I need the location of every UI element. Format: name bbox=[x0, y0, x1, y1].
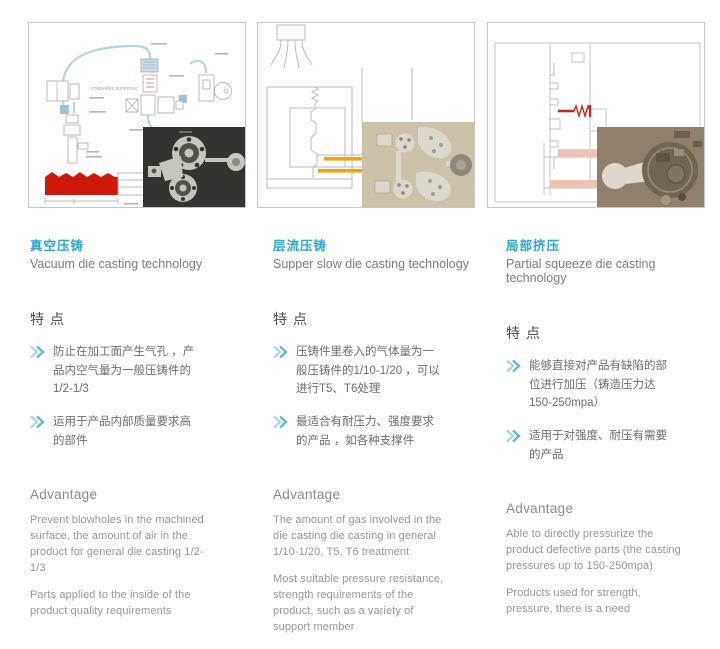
double-chevron-icon bbox=[273, 345, 288, 359]
partial-squeeze-features-heading: 特点 bbox=[506, 323, 711, 343]
supper-slow-diagram-panel bbox=[257, 22, 475, 208]
pipe-elbow bbox=[60, 105, 69, 114]
list-item: 能够直接对产品有缺陷的部位进行加压（铸造压力达150-250mpa） bbox=[506, 357, 711, 413]
vacuum-text-block: 真空压铸 Vacuum die casting technology 特点 防止… bbox=[28, 235, 252, 620]
feature-text: 最适合有耐压力、强度要求的产品 ，如各种支撑件 bbox=[296, 413, 442, 450]
partial-squeeze-advantage-heading: Advantage bbox=[506, 501, 711, 516]
partial-squeeze-schematic-diagram bbox=[488, 23, 704, 207]
molten-metal-bar bbox=[318, 169, 365, 173]
casting-photo-inset bbox=[597, 127, 704, 207]
feature-text: 运用于产品内部质量要求高的部件 bbox=[53, 413, 199, 450]
partial-squeeze-diagram-panel bbox=[487, 22, 705, 208]
feature-text: 压铸件里卷入的气体量为一般压铸件的1/10-1/20 ，可以进行T5、T6处理 bbox=[296, 343, 442, 399]
vacuum-schematic-diagram: FONDAREX SUPERVAC bbox=[29, 23, 245, 207]
list-item: 防止在加工面产生气孔 ，产品内空气量为一般压铸件的1/2-1/3 bbox=[30, 343, 252, 399]
list-item: 最适合有耐压力、强度要求的产品 ，如各种支撑件 bbox=[273, 413, 481, 450]
advantage-paragraph: The amount of gas involved in the die ca… bbox=[273, 513, 451, 561]
list-item: 适用于对强度、耐压有需要的产品 bbox=[506, 427, 711, 464]
vacuum-advantage-heading: Advantage bbox=[30, 487, 252, 502]
vacuum-features-heading: 特点 bbox=[30, 309, 252, 329]
dimension-line bbox=[45, 198, 118, 204]
supper-slow-title-zh: 层流压铸 bbox=[273, 235, 481, 254]
column-partial-squeeze: 局部挤压 Partial squeeze die casting technol… bbox=[487, 22, 711, 618]
double-chevron-icon bbox=[30, 345, 45, 359]
casting-photo-inset bbox=[362, 122, 474, 207]
vacuum-title-zh: 真空压铸 bbox=[30, 235, 252, 254]
machine-brand-label: FONDAREX SUPERVAC bbox=[91, 86, 138, 91]
vacuum-title-en: Vacuum die casting technology bbox=[30, 257, 252, 271]
advantage-paragraph: Prevent blowholes in the machined surfac… bbox=[30, 513, 208, 577]
feature-text: 能够直接对产品有缺陷的部位进行加压（铸造压力达150-250mpa） bbox=[529, 357, 675, 413]
casting-photo-inset bbox=[143, 127, 245, 207]
molten-metal-bar bbox=[324, 157, 364, 161]
advantage-paragraph: Products used for strength, pressure, th… bbox=[506, 586, 684, 618]
feature-text: 防止在加工面产生气孔 ，产品内空气量为一般压铸件的1/2-1/3 bbox=[53, 343, 199, 399]
squeeze-pad bbox=[550, 180, 598, 188]
supper-slow-advantage-heading: Advantage bbox=[273, 487, 481, 502]
list-item: 运用于产品内部质量要求高的部件 bbox=[30, 413, 252, 450]
double-chevron-icon bbox=[506, 359, 521, 373]
advantage-paragraph: Parts applied to the inside of the produ… bbox=[30, 588, 208, 620]
double-chevron-icon bbox=[273, 415, 288, 429]
list-item: 压铸件里卷入的气体量为一般压铸件的1/10-1/20 ，可以进行T5、T6处理 bbox=[273, 343, 481, 399]
column-vacuum: FONDAREX SUPERVAC bbox=[28, 22, 252, 620]
vacuum-diagram-panel: FONDAREX SUPERVAC bbox=[28, 22, 246, 208]
supper-slow-text-block: 层流压铸 Supper slow die casting technology … bbox=[257, 235, 481, 636]
squeeze-pad bbox=[558, 149, 598, 157]
column-supper-slow: 层流压铸 Supper slow die casting technology … bbox=[257, 22, 481, 636]
supper-slow-schematic-diagram bbox=[258, 23, 474, 207]
molten-metal-pool bbox=[45, 172, 118, 195]
catalog-page: FONDAREX SUPERVAC bbox=[0, 0, 720, 649]
supper-slow-features-heading: 特点 bbox=[273, 309, 481, 329]
double-chevron-icon bbox=[506, 429, 521, 443]
advantage-paragraph: Most suitable pressure resistance, stren… bbox=[273, 572, 451, 636]
partial-squeeze-title-en: Partial squeeze die casting technology bbox=[506, 257, 711, 285]
partial-squeeze-title-zh: 局部挤压 bbox=[506, 235, 711, 254]
feature-text: 适用于对强度、耐压有需要的产品 bbox=[529, 427, 675, 464]
supper-slow-title-en: Supper slow die casting technology bbox=[273, 257, 481, 271]
double-chevron-icon bbox=[30, 415, 45, 429]
squeeze-pin-red bbox=[558, 105, 590, 117]
advantage-paragraph: Able to directly pressurize the product … bbox=[506, 527, 684, 575]
dimension-label bbox=[124, 203, 138, 205]
partial-squeeze-text-block: 局部挤压 Partial squeeze die casting technol… bbox=[487, 235, 711, 618]
shot-sleeve-box bbox=[118, 173, 145, 195]
